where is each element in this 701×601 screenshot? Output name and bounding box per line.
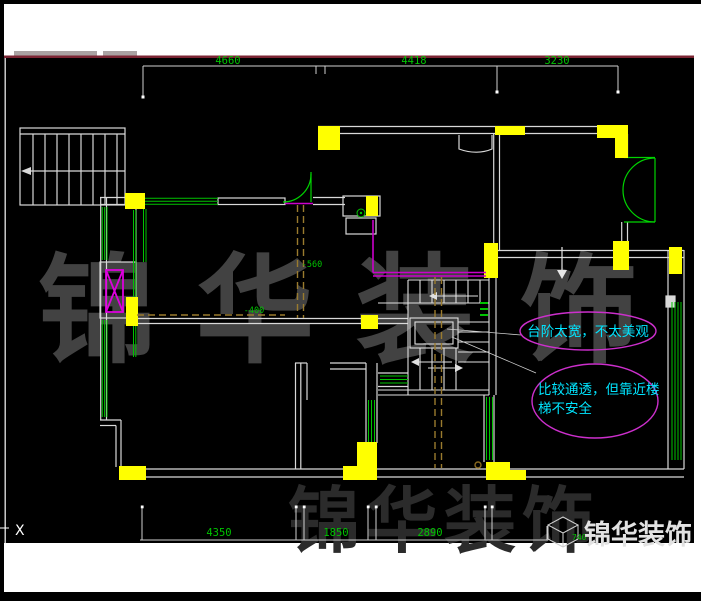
dimension-value: 4418	[401, 55, 426, 67]
column	[615, 125, 628, 158]
column	[361, 315, 378, 329]
dim-tick	[375, 506, 378, 509]
dimension-value: 2890	[417, 527, 442, 539]
level-tick	[480, 302, 488, 304]
dimension-value: 1850	[323, 527, 348, 539]
column	[357, 442, 377, 480]
window-jamb	[666, 296, 675, 307]
level-mark-text: -560	[302, 260, 322, 270]
column	[343, 466, 358, 480]
annotation-text: 梯不安全	[538, 400, 592, 417]
drawing-page: 锦 华 装 饰 锦华装饰 4660 4418 3230	[0, 0, 701, 601]
top-gray-bar	[103, 51, 137, 56]
dim-tick	[141, 506, 144, 509]
dim-tick	[484, 506, 487, 509]
dim-tick	[617, 91, 620, 94]
column	[318, 126, 340, 150]
column	[125, 193, 145, 209]
dim-tick	[491, 506, 494, 509]
column	[613, 241, 629, 270]
gas-point-center	[360, 212, 362, 214]
maroon-rule	[4, 56, 694, 59]
dim-tick	[496, 91, 499, 94]
column	[669, 247, 682, 274]
dim-tick	[295, 506, 298, 509]
column	[486, 462, 510, 480]
top-gray-bar	[14, 51, 97, 56]
dim-tick	[303, 506, 306, 509]
level-tick	[480, 308, 488, 310]
watermark-char: 锦	[38, 247, 156, 378]
level-mark-text: -400	[244, 306, 264, 316]
column	[119, 466, 146, 480]
bottom-border	[0, 592, 701, 601]
dim-tick	[367, 506, 370, 509]
column	[510, 470, 526, 480]
left-border	[0, 4, 4, 601]
dimension-value: 4350	[206, 527, 231, 539]
canvas-left-edge-line	[5, 58, 6, 543]
column	[366, 196, 378, 216]
column	[126, 297, 138, 326]
dimension-value: 4660	[215, 55, 240, 67]
top-border	[0, 0, 701, 4]
column	[495, 126, 525, 135]
axis-label: X	[15, 523, 25, 539]
level-tick	[480, 314, 488, 316]
annotation-text: 比较通透，但靠近楼	[538, 382, 660, 398]
dim-tick	[142, 96, 145, 99]
cad-floor-plan: 锦 华 装 饰 锦华装饰 4660 4418 3230	[0, 0, 701, 601]
dimension-value: 3230	[544, 55, 569, 67]
column	[484, 243, 498, 278]
annotation-text: 台阶太宽，不太美观	[527, 323, 649, 340]
logo-brand-text: 锦华装饰	[584, 519, 692, 550]
